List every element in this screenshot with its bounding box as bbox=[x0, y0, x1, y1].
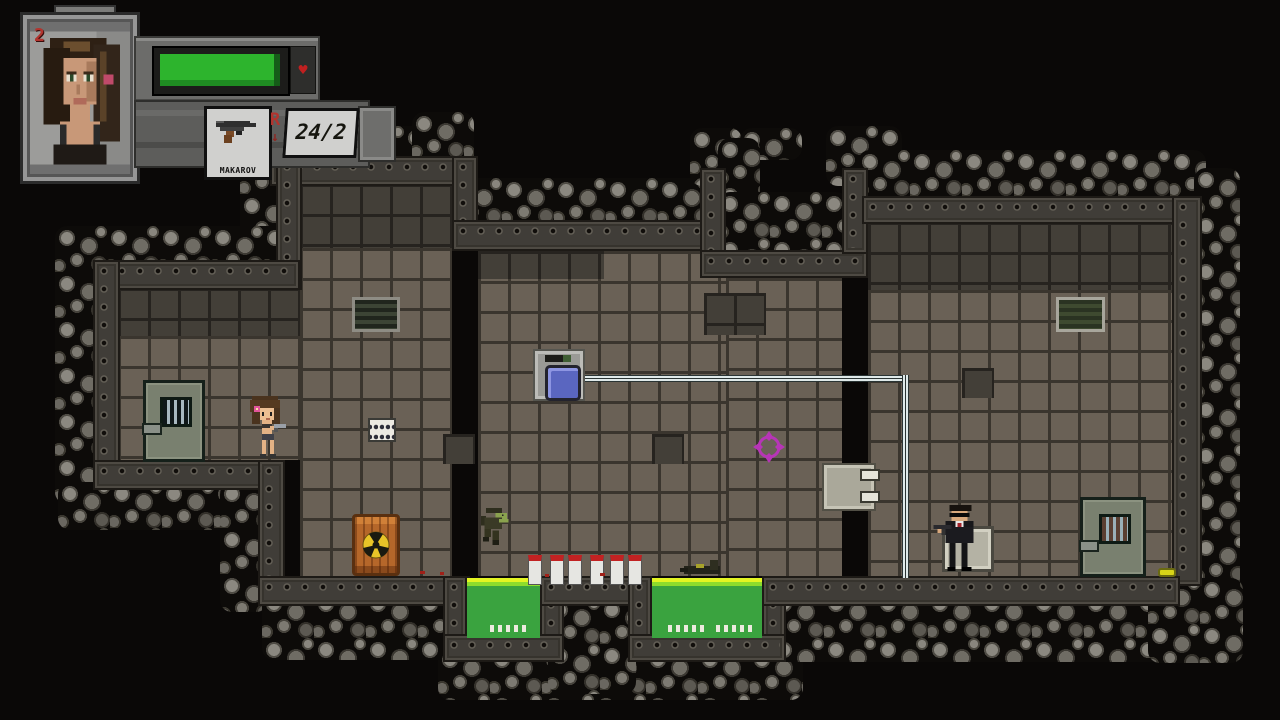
heart-icon: ♥ bbox=[290, 46, 316, 94]
ammo-pickup[interactable] bbox=[1158, 568, 1176, 577]
floor-dark-patch-mid bbox=[704, 293, 766, 335]
wire-horizontal bbox=[585, 375, 907, 382]
floor-dark-left-room bbox=[118, 288, 300, 336]
crosshair-cursor bbox=[752, 430, 786, 464]
wall-bottom-right bbox=[762, 576, 1180, 606]
blood-speckle bbox=[545, 574, 549, 577]
lives-counter: 2 bbox=[34, 25, 45, 46]
wall-right bbox=[1172, 196, 1202, 586]
hatch-hinge-bottom bbox=[860, 491, 880, 503]
wire-vertical bbox=[902, 375, 909, 578]
rock-band-top-right bbox=[858, 150, 1206, 202]
wall-top-2 bbox=[452, 220, 707, 251]
door-handle bbox=[1079, 540, 1099, 552]
blood-speckle bbox=[600, 573, 605, 576]
health-bar bbox=[160, 54, 274, 86]
hatch-hinge-top bbox=[860, 469, 880, 481]
pistol-icon bbox=[214, 117, 262, 147]
enemy-agent bbox=[933, 505, 988, 577]
prison-door-left[interactable] bbox=[143, 380, 205, 462]
hud-health-plate: ♥ bbox=[134, 36, 320, 104]
wall-pool2-bottom bbox=[628, 634, 786, 662]
game-viewport[interactable]: 2 bbox=[0, 0, 1280, 720]
wall-button[interactable] bbox=[533, 349, 585, 401]
hud-portrait-frame: 2 bbox=[20, 12, 140, 184]
weapon-name: MAKAROV bbox=[207, 166, 269, 175]
wall-left-room-top bbox=[93, 260, 300, 290]
zombie-soldier bbox=[476, 508, 512, 548]
health-lcd bbox=[152, 46, 290, 96]
floor-dark-tile-3 bbox=[962, 368, 994, 398]
floor-dark-top-left bbox=[300, 184, 452, 248]
rock-band-top-mid bbox=[450, 178, 708, 226]
floor-dark-center-row bbox=[478, 251, 604, 279]
corpse bbox=[680, 556, 724, 578]
floor-dark-tile-2 bbox=[652, 434, 684, 464]
reload-arrow-icon: ↓ bbox=[266, 131, 284, 144]
wall-pool1-bottom bbox=[443, 634, 564, 662]
wall-top-3 bbox=[862, 196, 1180, 224]
button-blue-pad bbox=[545, 365, 581, 401]
bottle-1 bbox=[528, 555, 542, 585]
radioactive-barrel[interactable] bbox=[352, 514, 400, 576]
pool-drain-2 bbox=[668, 625, 704, 632]
keypad[interactable] bbox=[368, 418, 396, 442]
bottle-2 bbox=[550, 555, 564, 585]
blood-speckle bbox=[440, 572, 444, 575]
wall-notch-sill bbox=[700, 250, 868, 278]
floor-dark-tile-1 bbox=[443, 434, 475, 464]
reload-indicator: R ↓ bbox=[266, 112, 284, 160]
wall-vent-right bbox=[1056, 297, 1105, 332]
door-window bbox=[160, 397, 192, 427]
bottle-5 bbox=[610, 555, 624, 585]
weapon-panel: MAKAROV bbox=[204, 106, 272, 180]
floor-center-column bbox=[478, 251, 726, 576]
player-girl bbox=[246, 394, 286, 462]
wall-vent-left bbox=[352, 297, 400, 332]
button-led bbox=[545, 355, 571, 362]
door-window bbox=[1099, 514, 1131, 544]
portrait-image bbox=[30, 22, 130, 174]
pool-drain-1 bbox=[490, 625, 526, 632]
hud-end-cap bbox=[358, 106, 396, 162]
bottle-3 bbox=[568, 555, 582, 585]
bottle-6 bbox=[628, 555, 642, 585]
wall-left-room-bottom bbox=[93, 460, 285, 490]
pool-drain-3 bbox=[716, 625, 752, 632]
radiation-icon bbox=[361, 530, 391, 560]
bottle-4 bbox=[590, 555, 604, 585]
wall-left bbox=[93, 260, 120, 490]
reload-letter: R bbox=[270, 110, 280, 130]
wall-hatch[interactable] bbox=[822, 463, 876, 511]
wall-bottom-left bbox=[258, 576, 470, 606]
ammo-counter: 24/2 bbox=[282, 108, 359, 158]
blood-speckle bbox=[420, 571, 425, 574]
prison-door-right[interactable] bbox=[1080, 497, 1146, 577]
door-handle bbox=[142, 423, 162, 435]
floor-dark-right-band bbox=[868, 222, 1172, 290]
